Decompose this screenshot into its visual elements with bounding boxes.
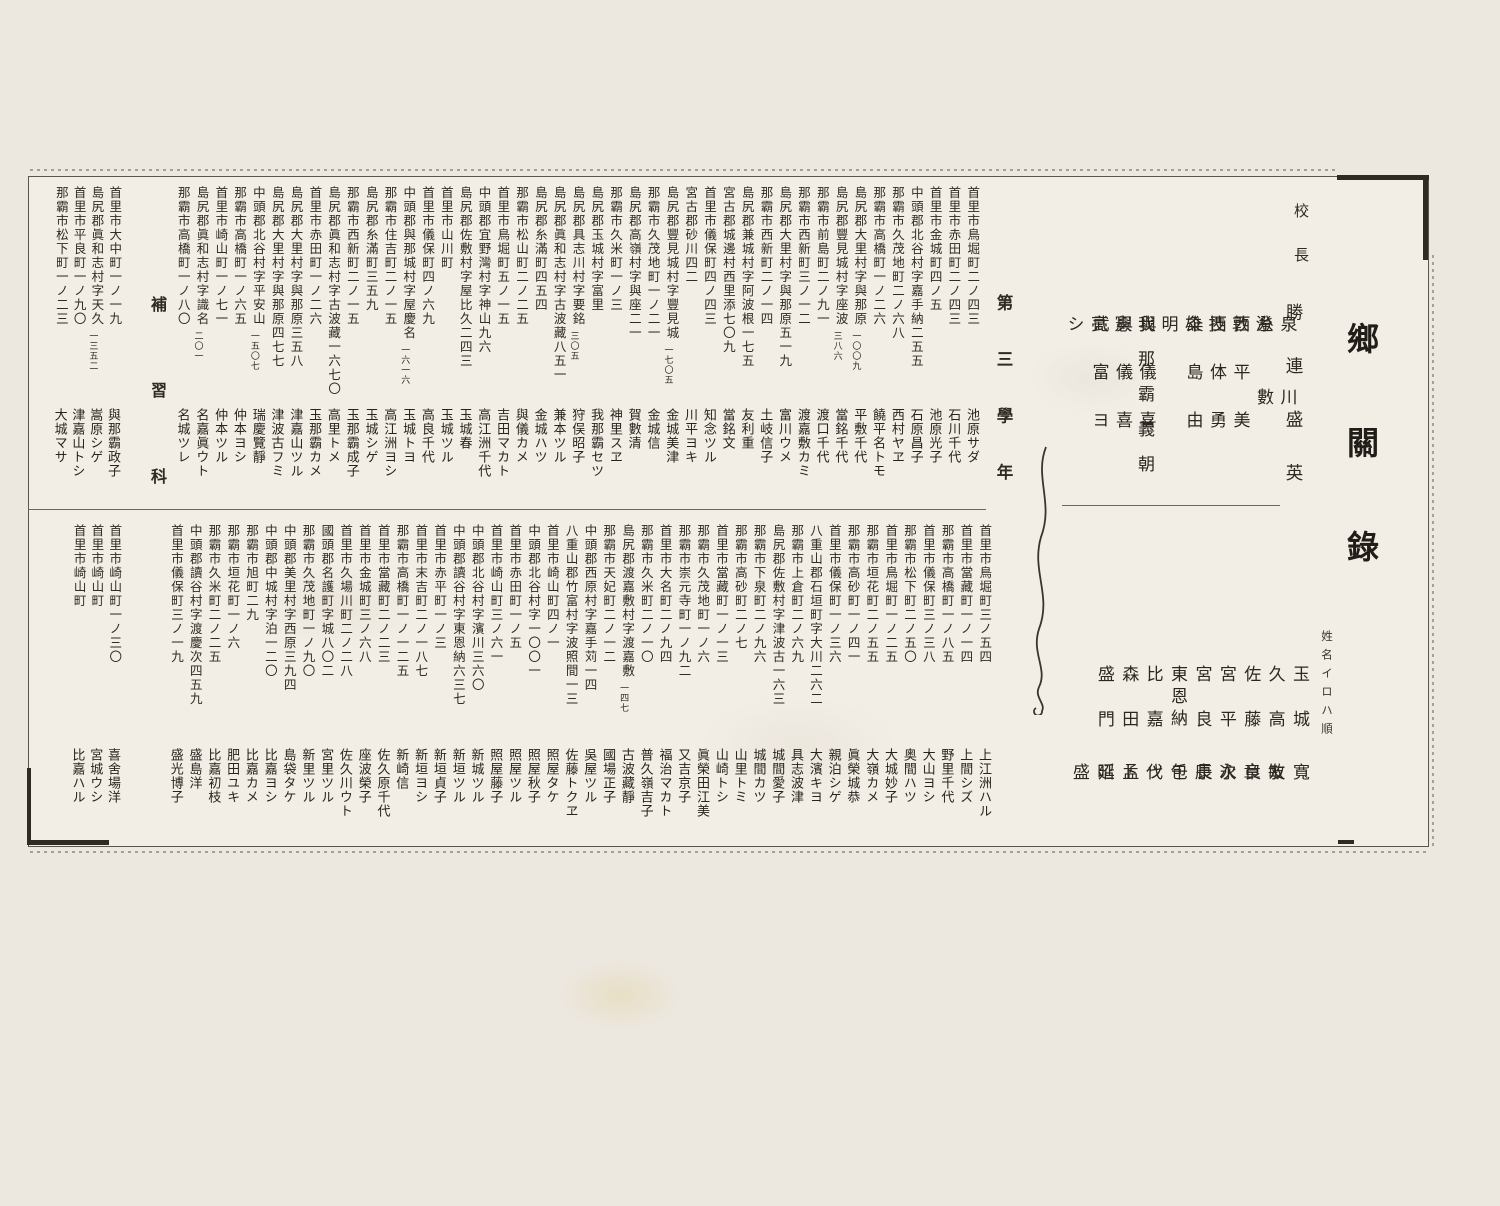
student-address-number: 一七〇五 <box>662 345 675 385</box>
student-address: 中頭郡北谷村字一〇〇一 <box>524 524 543 678</box>
student-name: 上間シズ <box>956 748 975 804</box>
student-name: 川平ヨキ <box>681 408 700 464</box>
student-entry: 中頭郡讀谷村字渡慶次四五九 盛島洋 <box>186 524 205 844</box>
student-address: 那霸市住吉町二ノ一五 <box>381 186 400 326</box>
student-entry: 島尻郡眞和志村字古波藏一六七〇 高里トメ <box>324 186 343 511</box>
student-address: 島尻郡眞和志村字古波藏八五一 <box>550 186 569 382</box>
student-entry: 島尻郡兼城村字阿波根一七五 友利重 <box>738 186 757 511</box>
student-entry: 首里市大名町二ノ九四 福治マカト <box>656 524 675 844</box>
student-entry: 島尻郡豐見城村字座波三八六 當銘千代 <box>832 186 851 511</box>
student-name: 玉那霸成子 <box>343 408 362 478</box>
staff-name: 粂島由明 <box>1156 315 1180 491</box>
student-entry: 島尻郡佐敷村字屋比久二四三 玉城春 <box>456 186 475 511</box>
student-address: 中頭郡與那城村字屋慶名 <box>399 186 418 340</box>
student-address-number: 三八六 <box>832 331 845 361</box>
student-address: 中頭郡北谷村字平安山 <box>249 186 268 326</box>
student-entry: 首里市崎山町一ノ三〇 喜舍場洋 <box>105 524 123 844</box>
student-name: 仲本ヨシ <box>230 408 249 464</box>
student-entry: 島尻郡玉城村字富里 我那霸セツ <box>587 186 606 511</box>
student-name: 城間カツ <box>750 748 769 804</box>
student-address: 首里市崎山町一ノ七一 <box>211 186 230 326</box>
student-entry: 中頭郡讀谷村字東恩納六三七 新垣ツル <box>449 524 468 844</box>
staff-name-list-row2: 玉城寬敏久高友章佐藤良次宮平永康宮良長包東恩納千代比嘉ツト森田孟昭盛門延盛 <box>1095 665 1315 850</box>
hoshuka-list-band1: 首里市大中町一ノ一九 與那霸政子 島尻郡眞和志村字天久一三五二 嵩原シゲ 首里市… <box>51 186 123 511</box>
student-entry: 那霸市垣花町一ノ六 肥田ユキ <box>223 524 242 844</box>
student-address: 首里市崎山町 <box>87 524 106 608</box>
student-name: 西村ヤヱ <box>888 408 907 464</box>
student-address: 首里市崎山町 <box>70 524 89 608</box>
student-address: 島尻郡玉城村字富里 <box>587 186 606 312</box>
student-name: 吉田マカト <box>493 408 512 478</box>
student-address: 那霸市久茂地町二ノ六八 <box>888 186 907 340</box>
student-address: 首里市久場川町二ノ二八 <box>336 524 355 678</box>
student-entry: 首里市崎山町三ノ六一 照屋藤子 <box>486 524 505 844</box>
student-entry: 那霸市垣花町二ノ五五 大嶺カメ <box>862 524 881 844</box>
student-name: 新崎信 <box>393 748 412 790</box>
student-name: 照屋秋子 <box>524 748 543 804</box>
student-entry: 首里市鳥堀町一ノ二五 大城妙子 <box>881 524 900 844</box>
student-name: 兼本ツル <box>550 408 569 464</box>
student-entry: 島尻郡糸滿町四五四 金城ハツ <box>531 186 550 511</box>
student-name: 平敷千代 <box>850 408 869 464</box>
student-address: 島尻郡豐見城村字豐見城 <box>662 186 681 340</box>
student-entry: 那霸市天妃町二ノ一二 國場正子 <box>599 524 618 844</box>
student-name: 大城マサ <box>52 408 70 464</box>
student-entry: 那霸市久米町一ノ三 神里スヱ <box>606 186 625 511</box>
student-address: 那霸市高橋町一ノ八〇 <box>174 186 193 326</box>
student-name: 眞榮田江美 <box>693 748 712 818</box>
student-entry: 首里市當藏町二ノ二三 佐久原千代 <box>374 524 393 844</box>
student-address: 那霸市垣花町一ノ六 <box>223 524 242 650</box>
staff-name: 宮良長包 <box>1193 665 1217 850</box>
student-name: 渡口千代 <box>813 408 832 464</box>
student-entry: 中頭郡北谷村字一〇〇一 照屋秋子 <box>524 524 543 844</box>
student-address: 那霸市久茂地町一ノ六 <box>693 524 712 664</box>
student-address: 那霸市高橋町一ノ八五 <box>938 524 957 664</box>
student-name: 大嶺カメ <box>862 748 881 804</box>
student-address: 那霸市高橋町一ノ一二五 <box>393 524 412 678</box>
student-entry: 中頭郡美里村字西原三九四 島袋タケ <box>280 524 299 844</box>
staff-name: 佐藤良次 <box>1242 665 1266 850</box>
student-address: 中頭郡西原村字嘉手苅一四 <box>580 524 599 692</box>
student-address: 那霸市久茂地町一ノ二一 <box>644 186 663 340</box>
student-address: 首里市赤田町一ノ二六 <box>305 186 324 326</box>
student-entry: 首里市鳥堀町五ノ一五 吉田マカト <box>493 186 512 511</box>
student-entry: 首里市赤田町一ノ二六 玉那霸カメ <box>305 186 324 511</box>
student-name: 野里千代 <box>938 748 957 804</box>
student-name: 普久嶺吉子 <box>637 748 656 818</box>
border-accent-top-right-v <box>1423 175 1428 260</box>
student-address: 那霸市崇元寺町一ノ九二 <box>674 524 693 678</box>
student-entry: 那霸市久茂地町二ノ六八 西村ヤヱ <box>888 186 907 511</box>
student-address: 首里市平良町一ノ九〇 <box>70 186 89 326</box>
student-address: 那霸市松山町二ノ二五 <box>512 186 531 326</box>
student-name: 又吉京子 <box>674 748 693 804</box>
student-entry: 島尻郡佐敷村字津波古一六三 城間愛子 <box>768 524 787 844</box>
student-name: 津波古フミ <box>268 408 287 478</box>
student-address: 那霸市久米町二ノ一〇 <box>637 524 656 664</box>
student-address: 島尻郡眞和志村字識名 <box>193 186 212 326</box>
student-entry: 那霸市久茂地町一ノ六 眞榮田江美 <box>693 524 712 844</box>
staff-name: 武富ヨシ <box>1062 315 1086 491</box>
student-entry: 首里市久場川町二ノ二八 佐久川ウト <box>336 524 355 844</box>
student-entry: 那霸市下泉町二ノ九六 城間カツ <box>750 524 769 844</box>
grade-section-label: 第三學年 <box>991 294 1015 520</box>
student-entry: 首里市當藏町一ノ一四 上間シズ <box>956 524 975 844</box>
iroha-order-note: 姓名イロハ順 <box>1318 630 1334 741</box>
student-address-number: 三〇五 <box>568 331 581 361</box>
student-entry: 中頭郡與那城村字屋慶名一六一六 玉城トヨ <box>399 186 418 511</box>
student-name: 玉城シゲ <box>362 408 381 464</box>
student-name: 吳屋ツル <box>580 748 599 804</box>
staff-name: 宮平永康 <box>1217 665 1241 850</box>
student-entry: 那霸市前島町二ノ九一 渡口千代 <box>813 186 832 511</box>
student-name: 池原光子 <box>926 408 945 464</box>
student-name: 友利重 <box>738 408 757 450</box>
student-address: 首里市當藏町二ノ二三 <box>374 524 393 664</box>
divider-under-staff <box>1062 505 1280 506</box>
student-entry: 那霸市西新町二ノ一四 土岐信子 <box>756 186 775 511</box>
student-address: 首里市儀保町三ノ一九 <box>167 524 186 664</box>
student-name: 新垣ヨシ <box>411 748 430 804</box>
student-name: 高江洲ヨシ <box>381 408 400 478</box>
student-name: 比嘉初枝 <box>205 748 224 804</box>
student-name: 福治マカト <box>656 748 675 818</box>
staff-name: 東恩納千代 <box>1169 665 1193 850</box>
student-name: 盛島洋 <box>186 748 205 790</box>
student-entry: 島尻郡大里村字與那原五一九 富川ウメ <box>775 186 794 511</box>
student-name: 城間愛子 <box>768 748 787 804</box>
student-address: 首里市鳥堀町三ノ五四 <box>975 524 994 664</box>
student-address: 島尻郡佐敷村字津波古一六三 <box>768 524 787 706</box>
student-name: 宮城ウシ <box>87 748 105 804</box>
student-address: 首里市鳥堀町一ノ二五 <box>881 524 900 664</box>
student-name: 新垣ツル <box>449 748 468 804</box>
student-address: 首里市崎山町三ノ六一 <box>486 524 505 664</box>
student-name: 當銘千代 <box>832 408 851 464</box>
student-address: 島尻郡豐見城村字座波 <box>832 186 851 326</box>
student-name: 宮里ツル <box>317 748 336 804</box>
student-address: 島尻郡大里村字與那原 <box>850 186 869 326</box>
student-name: 狩俣昭子 <box>568 408 587 464</box>
student-name: 新里ツル <box>299 748 318 804</box>
student-entry: 首里市大中町一ノ一九 與那霸政子 <box>105 186 123 511</box>
staff-name: 比嘉ツト <box>1144 665 1168 850</box>
student-address: 那霸市高砂町一ノ四一 <box>844 524 863 664</box>
student-address: 島尻郡高嶺村字與座二一 <box>625 186 644 340</box>
student-name: 具志波津 <box>787 748 806 804</box>
student-address: 那霸市久茂地町一ノ九〇 <box>299 524 318 678</box>
student-name: 名嘉眞ウト <box>193 408 212 478</box>
staff-name: 久高友章 <box>1266 665 1290 850</box>
student-name: 上江洲ハル <box>975 748 994 818</box>
student-address: 那霸市久米町二ノ二五 <box>205 524 224 664</box>
student-name: 親泊シゲ <box>825 748 844 804</box>
student-name: 池原サダ <box>963 408 982 464</box>
student-entry: 首里市赤田町二ノ四三 石川千代 <box>944 186 963 511</box>
student-name: 高江洲千代 <box>474 408 493 478</box>
student-entry: 島尻郡大里村字與那原四七七 津波古フミ <box>268 186 287 511</box>
student-address: 首里市崎山町四ノ一 <box>543 524 562 650</box>
student-name: 知念ツル <box>700 408 719 464</box>
student-name: 比嘉ハル <box>70 748 88 804</box>
staff-name-list-row1: 泉川澄糸數敦西平美技西体勇雄粂島由明我那霸義朝與儀喜憲與儀喜亮武富ヨシ <box>1061 315 1273 491</box>
hoshuka-section-label: 補習科 <box>144 296 168 554</box>
student-entry: 島尻郡豐見城村字豐見城一七〇五 金城美津 <box>662 186 681 511</box>
student-address: 那霸市西新町二ノ一五 <box>343 186 362 326</box>
student-address: 首里市崎山町一ノ三〇 <box>105 524 124 664</box>
student-name: 比嘉カメ <box>242 748 261 804</box>
student-entry: 那霸市高橋町一ノ八〇 名城ツレ <box>174 186 193 511</box>
student-entry: 島尻郡眞和志村字古波藏八五一 兼本ツル <box>550 186 569 511</box>
student-entry: 首里市儀保町三ノ三八 大山ヨシ <box>919 524 938 844</box>
student-entry: 中頭郡中城村字泊一二〇 比嘉ヨシ <box>261 524 280 844</box>
deckle-edge-right <box>1432 255 1434 847</box>
student-address-number: 二〇一 <box>193 331 206 361</box>
student-entry: 那霸市松下町一ノ二三 大城マサ <box>52 186 70 511</box>
student-list-band1: 首里市鳥堀町二ノ四三 池原サダ 首里市赤田町二ノ四三 石川千代 首里市金城町四ノ… <box>173 186 982 511</box>
student-address: 首里市儀保町四ノ六九 <box>418 186 437 326</box>
student-entry: 國頭郡名護町字城八〇二 宮里ツル <box>317 524 336 844</box>
student-entry: 那霸市久米町二ノ一〇 普久嶺吉子 <box>637 524 656 844</box>
student-entry: 那霸市旭町二九 比嘉カメ <box>242 524 261 844</box>
student-name: 新垣貞子 <box>430 748 449 804</box>
staff-name: 玉城寬敏 <box>1291 665 1315 850</box>
student-name: 佐久川ウト <box>336 748 355 818</box>
student-name: 玉城春 <box>456 408 475 450</box>
student-name: 國場正子 <box>599 748 618 804</box>
student-name: 古波藏靜 <box>618 748 637 804</box>
student-address: 中頭郡北谷村字嘉手納二五五 <box>907 186 926 368</box>
student-entry: 八重山郡竹富村字波照間一三 佐藤トクヱ <box>562 524 581 844</box>
student-entry: 那霸市高橋町一ノ六五 仲本ヨシ <box>230 186 249 511</box>
student-name: 盛光博子 <box>167 748 186 804</box>
student-entry: 島尻郡大里村字與那原一〇〇九 平敷千代 <box>850 186 869 511</box>
scanned-register-page: 鄉關錄 姓名イロハ順 校長 勝連盛英 泉川澄糸數敦西平美技西体勇雄粂島由明我那霸… <box>0 0 1500 1206</box>
student-address: 島尻郡具志川村字要銘 <box>568 186 587 326</box>
student-address-number: 一六一六 <box>399 345 412 385</box>
border-accent-top-right-h <box>1337 175 1429 180</box>
student-name: 津嘉山トシ <box>70 408 88 478</box>
student-address: 首里市當藏町一ノ一四 <box>956 524 975 664</box>
student-name: 津嘉山ツル <box>287 408 306 478</box>
student-address: 首里市鳥堀町五ノ一五 <box>493 186 512 326</box>
student-entry: 島尻郡眞和志村字識名二〇一 名嘉眞ウト <box>193 186 212 511</box>
student-address: 首里市大名町二ノ九四 <box>656 524 675 664</box>
student-name: 高里トメ <box>324 408 343 464</box>
student-address: 中頭郡中城村字泊一二〇 <box>261 524 280 678</box>
principal-label: 校長 <box>1290 203 1311 291</box>
student-entry: 那霸市高橋町一ノ二六 饒平名トモ <box>869 186 888 511</box>
student-name: 新城ツル <box>468 748 487 804</box>
student-name: 富川ウメ <box>775 408 794 464</box>
student-entry: 中頭郡西原村字嘉手苅一四 吳屋ツル <box>580 524 599 844</box>
student-name: 我那霸セツ <box>587 408 606 478</box>
student-name: 比嘉ヨシ <box>261 748 280 804</box>
paper-stain <box>560 960 680 1030</box>
student-entry: 那霸市西新町三ノ一二 渡嘉敷カミ <box>794 186 813 511</box>
student-entry: 首里市金城町三ノ六八 座波榮子 <box>355 524 374 844</box>
student-address: 那霸市下泉町二ノ九六 <box>750 524 769 664</box>
student-entry: 那霸市住吉町二ノ一五 高江洲ヨシ <box>381 186 400 511</box>
student-address: 島尻郡糸滿町四五四 <box>531 186 550 312</box>
student-entry: 那霸市高橋町一ノ八五 野里千代 <box>938 524 957 844</box>
student-name: 與儀カメ <box>512 408 531 464</box>
student-entry: 島尻郡高嶺村字與座二一 賀數清 <box>625 186 644 511</box>
student-entry: 首里市鳥堀町三ノ五四 上江洲ハル <box>975 524 994 844</box>
student-name: 仲本ツル <box>211 408 230 464</box>
student-list-band2: 首里市鳥堀町三ノ五四 上江洲ハル 首里市當藏町一ノ一四 上間シズ 那霸市高橋町一… <box>167 524 994 844</box>
student-name: 島袋タケ <box>280 748 299 804</box>
student-address: 那霸市西新町二ノ一四 <box>756 186 775 326</box>
student-name: 饒平名トモ <box>869 408 888 478</box>
student-entry: 首里市崎山町一ノ七一 仲本ツル <box>211 186 230 511</box>
student-address: 首里市末吉町二ノ一八七 <box>411 524 430 678</box>
student-address: 國頭郡名護町字城八〇二 <box>317 524 336 678</box>
student-name: 土岐信子 <box>756 408 775 464</box>
student-address: 首里市當藏町一ノ一三 <box>712 524 731 664</box>
student-address: 首里市大中町一ノ一九 <box>105 186 124 326</box>
student-entry: 首里市赤平町一ノ三 新垣貞子 <box>430 524 449 844</box>
deckle-edge-bottom <box>30 851 1430 853</box>
deckle-edge-top <box>30 169 1335 171</box>
student-entry: 中頭郡北谷村字平安山一五〇七 瑞慶覽靜 <box>249 186 268 511</box>
student-entry: 首里市山川町 玉城ツル <box>437 186 456 511</box>
student-entry: 首里市崎山町 比嘉ハル <box>70 524 88 844</box>
student-address: 首里市山川町 <box>437 186 456 270</box>
student-address: 那霸市旭町二九 <box>242 524 261 622</box>
student-address: 首里市儀保町三ノ三八 <box>919 524 938 664</box>
student-address: 島尻郡大里村字與那原三五八 <box>287 186 306 368</box>
student-name: 照屋タケ <box>543 748 562 804</box>
student-entry: 中頭郡北谷村字濱川三六〇 新城ツル <box>468 524 487 844</box>
student-address-number: 一五〇七 <box>249 331 262 371</box>
student-entry: 首里市崎山町 宮城ウシ <box>87 524 105 844</box>
student-name: 山崎トシ <box>712 748 731 804</box>
student-entry: 首里市儀保町三ノ一九 盛光博子 <box>167 524 186 844</box>
student-address: 那霸市高橋町一ノ六五 <box>230 186 249 326</box>
student-entry: 宮古郡城邊村西里添七〇九 當銘文 <box>719 186 738 511</box>
student-address: 首里市赤田町二ノ四三 <box>944 186 963 326</box>
student-name: 神里スヱ <box>606 408 625 464</box>
student-entry: 首里市平良町一ノ九〇 津嘉山トシ <box>70 186 88 511</box>
student-address: 八重山郡石垣町字大川二六二 <box>806 524 825 706</box>
student-name: 渡嘉敷カミ <box>794 408 813 478</box>
student-address: 首里市儀保町四ノ四三 <box>700 186 719 326</box>
student-name: 喜舍場洋 <box>105 748 123 804</box>
student-entry: 中頭郡北谷村字嘉手納二五五 石原昌子 <box>907 186 926 511</box>
student-entry: 那霸市上倉町二ノ六九 具志波津 <box>787 524 806 844</box>
student-address: 島尻郡大里村字與那原四七七 <box>268 186 287 368</box>
border-accent-bottom-right-dash <box>1338 840 1354 844</box>
student-address: 島尻郡眞和志村字天久 <box>87 186 106 326</box>
student-address: 宮古郡城邊村西里添七〇九 <box>719 186 738 354</box>
student-name: 山里トミ <box>731 748 750 804</box>
student-address: 那霸市松下町一ノ二三 <box>52 186 71 326</box>
student-address: 島尻郡眞和志村字古波藏一六七〇 <box>324 186 343 396</box>
staff-name: 盛門延盛 <box>1095 665 1119 850</box>
student-name: 石川千代 <box>944 408 963 464</box>
student-entry: 八重山郡石垣町字大川二六二 大濱キヨ <box>806 524 825 844</box>
student-address: 那霸市上倉町二ノ六九 <box>787 524 806 664</box>
student-entry: 首里市金城町四ノ五 池原光子 <box>926 186 945 511</box>
student-address: 那霸市高橋町一ノ二六 <box>869 186 888 326</box>
student-address: 島尻郡大里村字與那原五一九 <box>775 186 794 368</box>
student-entry: 那霸市松下町二ノ五〇 奥間ハツ <box>900 524 919 844</box>
student-address: 島尻郡兼城村字阿波根一七五 <box>738 186 757 368</box>
student-address: 那霸市前島町二ノ九一 <box>813 186 832 326</box>
student-address: 首里市儀保町一ノ三六 <box>825 524 844 664</box>
student-name: 眞榮城恭 <box>844 748 863 804</box>
student-address: 中頭郡美里村字西原三九四 <box>280 524 299 692</box>
student-name: 玉城ツル <box>437 408 456 464</box>
student-address: 那霸市西新町三ノ一二 <box>794 186 813 326</box>
student-entry: 首里市儀保町一ノ三六 親泊シゲ <box>825 524 844 844</box>
student-name: 照屋藤子 <box>486 748 505 804</box>
student-entry: 島尻郡具志川村字要銘三〇五 狩俣昭子 <box>568 186 587 511</box>
student-address: 首里市金城町三ノ六八 <box>355 524 374 664</box>
student-entry: 首里市儀保町四ノ六九 高良千代 <box>418 186 437 511</box>
student-address: 島尻郡佐敷村字屋比久二四三 <box>456 186 475 368</box>
student-address-number: 一三五二 <box>87 331 100 371</box>
student-entry: 島尻郡眞和志村字天久一三五二 嵩原シゲ <box>87 186 105 511</box>
student-name: 名城ツレ <box>174 408 193 464</box>
student-address: 宮古郡砂川四二 <box>681 186 700 284</box>
student-entry: 首里市末吉町二ノ一八七 新垣ヨシ <box>411 524 430 844</box>
student-address: 那霸市松下町二ノ五〇 <box>900 524 919 664</box>
divider-under-band1 <box>28 509 986 510</box>
student-address-number: 一四七 <box>618 683 631 713</box>
student-name: 佐藤トクヱ <box>562 748 581 818</box>
student-entry: 宮古郡砂川四二 川平ヨキ <box>681 186 700 511</box>
student-entry: 島尻郡大里村字與那原三五八 津嘉山ツル <box>287 186 306 511</box>
student-address: 那霸市久米町一ノ三 <box>606 186 625 312</box>
student-address: 那霸市天妃町二ノ一二 <box>599 524 618 664</box>
student-address: 那霸市高砂町二ノ七 <box>731 524 750 650</box>
student-name: 玉城トヨ <box>399 408 418 464</box>
student-address: 那霸市垣花町二ノ五五 <box>862 524 881 664</box>
student-address: 首里市鳥堀町二ノ四三 <box>963 186 982 326</box>
student-entry: 那霸市西新町二ノ一五 玉那霸成子 <box>343 186 362 511</box>
student-name: 大濱キヨ <box>806 748 825 804</box>
student-address: 中頭郡北谷村字濱川三六〇 <box>468 524 487 692</box>
student-name: 肥田ユキ <box>223 748 242 804</box>
student-name: 當銘文 <box>719 408 738 450</box>
student-name: 高良千代 <box>418 408 437 464</box>
student-entry: 首里市當藏町一ノ一三 山崎トシ <box>712 524 731 844</box>
student-name: 金城美津 <box>662 408 681 464</box>
student-name: 佐久原千代 <box>374 748 393 818</box>
student-address: 八重山郡竹富村字波照間一三 <box>562 524 581 706</box>
student-entry: 島尻郡糸滿町三五九 玉城シゲ <box>362 186 381 511</box>
student-entry: 那霸市崇元寺町一ノ九二 又吉京子 <box>674 524 693 844</box>
student-entry: 那霸市高橋町一ノ一二五 新崎信 <box>393 524 412 844</box>
student-address: 首里市赤平町一ノ三 <box>430 524 449 650</box>
student-name: 大城妙子 <box>881 748 900 804</box>
student-name: 瑞慶覽靜 <box>249 408 268 464</box>
student-entry: 那霸市高砂町二ノ七 山里トミ <box>731 524 750 844</box>
student-address: 中頭郡讀谷村字渡慶次四五九 <box>186 524 205 706</box>
student-entry: 那霸市松山町二ノ二五 與儀カメ <box>512 186 531 511</box>
student-name: 玉那霸カメ <box>305 408 324 478</box>
student-name: 與那霸政子 <box>105 408 123 478</box>
student-entry: 首里市鳥堀町二ノ四三 池原サダ <box>963 186 982 511</box>
staff-name: 森田孟昭 <box>1120 665 1144 850</box>
student-name: 金城ハツ <box>531 408 550 464</box>
student-entry: 那霸市高砂町一ノ四一 眞榮城恭 <box>844 524 863 844</box>
student-name: 大山ヨシ <box>919 748 938 804</box>
decorative-brace <box>1026 445 1060 715</box>
